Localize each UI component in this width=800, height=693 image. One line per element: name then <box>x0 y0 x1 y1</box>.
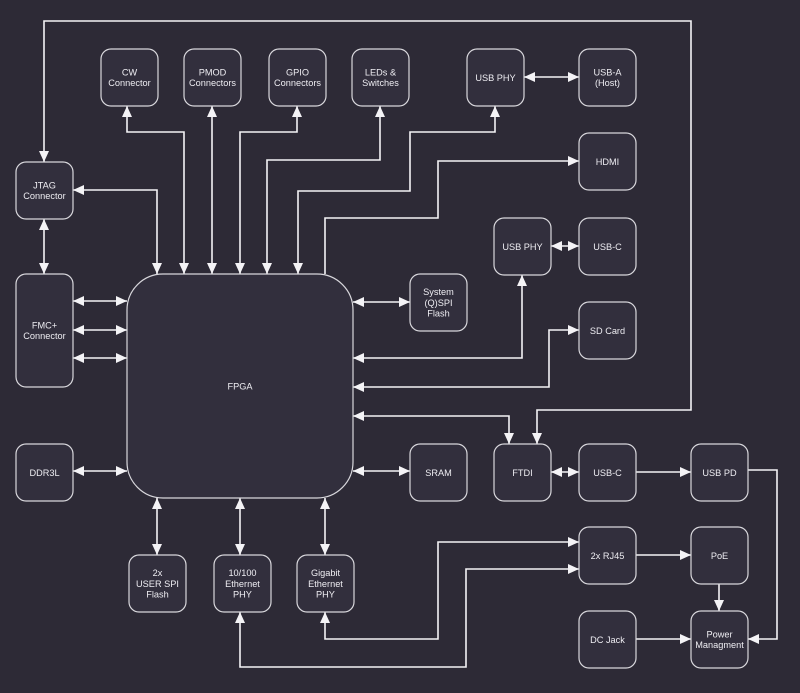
node-fmc-connector[interactable]: FMC+Connector <box>16 274 73 387</box>
block-diagram: CWConnectorPMODConnectorsGPIOConnectorsL… <box>0 0 800 693</box>
fpga-label: FPGA <box>227 381 253 391</box>
node-ftdi[interactable]: FTDI <box>494 444 551 501</box>
node-cw-connector[interactable]: CWConnector <box>101 49 158 106</box>
node-power-management[interactable]: PowerManagment <box>691 611 748 668</box>
node-ddr3l[interactable]: DDR3L <box>16 444 73 501</box>
usb-phy-top-label: USB PHY <box>475 73 515 83</box>
sram-label: SRAM <box>425 468 452 478</box>
ftdi-label: FTDI <box>512 468 532 478</box>
node-sram[interactable]: SRAM <box>410 444 467 501</box>
edge-ethernet-phy-10-100--rj45 <box>240 569 579 667</box>
node-pmod-connectors[interactable]: PMODConnectors <box>184 49 241 106</box>
node-rj45[interactable]: 2x RJ45 <box>579 527 636 584</box>
edge-ethernet-phy-gigabit--rj45 <box>325 542 579 639</box>
usb-c-bottom-label: USB-C <box>593 468 622 478</box>
diagram-canvas: CWConnectorPMODConnectorsGPIOConnectorsL… <box>0 0 800 693</box>
node-ethernet-phy-10-100[interactable]: 10/100EthernetPHY <box>214 555 271 612</box>
node-usb-phy-top[interactable]: USB PHY <box>467 49 524 106</box>
node-system-qspi-flash[interactable]: System(Q)SPIFlash <box>410 274 467 331</box>
edge-jtag-connector--fpga <box>73 190 157 274</box>
usb-pd-label: USB PD <box>702 468 737 478</box>
node-ethernet-phy-gigabit[interactable]: GigabitEthernetPHY <box>297 555 354 612</box>
node-poe[interactable]: PoE <box>691 527 748 584</box>
node-fpga[interactable]: FPGA <box>127 274 353 498</box>
edge-fpga--ftdi <box>353 416 509 444</box>
edge-usb-phy-top--fpga <box>298 106 495 274</box>
node-usb-phy-mid[interactable]: USB PHY <box>494 218 551 275</box>
dc-jack-label: DC Jack <box>590 635 625 645</box>
node-hdmi[interactable]: HDMI <box>579 133 636 190</box>
node-usb-c-bottom[interactable]: USB-C <box>579 444 636 501</box>
node-usb-pd[interactable]: USB PD <box>691 444 748 501</box>
hdmi-label: HDMI <box>596 157 619 167</box>
poe-label: PoE <box>711 551 728 561</box>
ddr3l-label: DDR3L <box>29 468 59 478</box>
node-sd-card[interactable]: SD Card <box>579 302 636 359</box>
usb-a-host-label: USB-A(Host) <box>593 67 622 88</box>
system-qspi-flash-label: System(Q)SPIFlash <box>423 287 454 319</box>
node-jtag-connector[interactable]: JTAGConnector <box>16 162 73 219</box>
node-usb-a-host[interactable]: USB-A(Host) <box>579 49 636 106</box>
node-user-spi-flash[interactable]: 2xUSER SPIFlash <box>129 555 186 612</box>
node-leds-switches[interactable]: LEDs &Switches <box>352 49 409 106</box>
usb-phy-mid-label: USB PHY <box>502 242 542 252</box>
leds-switches-label: LEDs &Switches <box>362 67 399 88</box>
sd-card-label: SD Card <box>590 326 625 336</box>
edge-usb-pd--power-management <box>748 470 777 639</box>
rj45-label: 2x RJ45 <box>591 551 625 561</box>
node-usb-c-top[interactable]: USB-C <box>579 218 636 275</box>
node-dc-jack[interactable]: DC Jack <box>579 611 636 668</box>
node-gpio-connectors[interactable]: GPIOConnectors <box>269 49 326 106</box>
usb-c-top-label: USB-C <box>593 242 622 252</box>
edge-gpio-connectors--fpga <box>240 106 297 274</box>
